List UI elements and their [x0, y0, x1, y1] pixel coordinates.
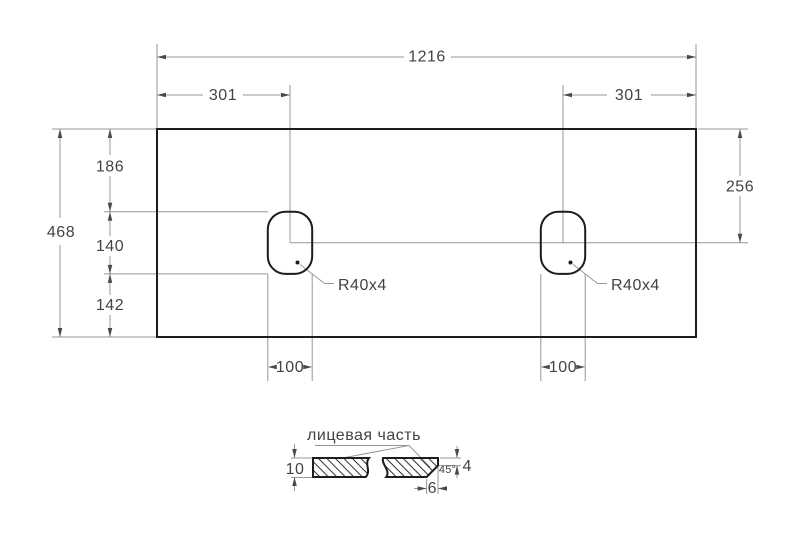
dim-overall-width: 1216 — [408, 49, 446, 66]
dim-right-cutout-offset: 301 — [615, 87, 643, 104]
dim-cutout-length: 140 — [96, 238, 124, 255]
dim-cutout-to-bottom: 142 — [96, 297, 124, 314]
label-face-side: лицевая часть — [307, 427, 421, 444]
technical-drawing: 1216 301 301 468 186 140 142 256 100 100… — [0, 0, 800, 533]
dim-top-to-cutout: 186 — [96, 159, 124, 176]
dim-thickness: 10 — [286, 461, 305, 478]
left-cutout-radius-dot — [296, 261, 300, 265]
dim-left-cutout-width: 100 — [276, 359, 304, 376]
label-corner-radius-right: R40x4 — [611, 277, 660, 294]
label-corner-radius-left: R40x4 — [338, 277, 387, 294]
right-cutout-radius-dot — [569, 261, 573, 265]
dim-overall-depth: 468 — [47, 224, 75, 241]
dim-top-to-cutout-center: 256 — [726, 179, 754, 196]
background — [0, 0, 800, 533]
dim-front-edge-height: 4 — [463, 458, 472, 475]
section-left-segment — [313, 458, 369, 477]
drawing-canvas: 1216 301 301 468 186 140 142 256 100 100… — [0, 0, 800, 533]
dim-right-cutout-width: 100 — [549, 359, 577, 376]
label-chamfer-angle: 45° — [439, 464, 456, 476]
dim-left-cutout-offset: 301 — [209, 87, 237, 104]
dim-chamfer-depth: 6 — [428, 480, 437, 497]
section-right-segment — [383, 458, 438, 477]
